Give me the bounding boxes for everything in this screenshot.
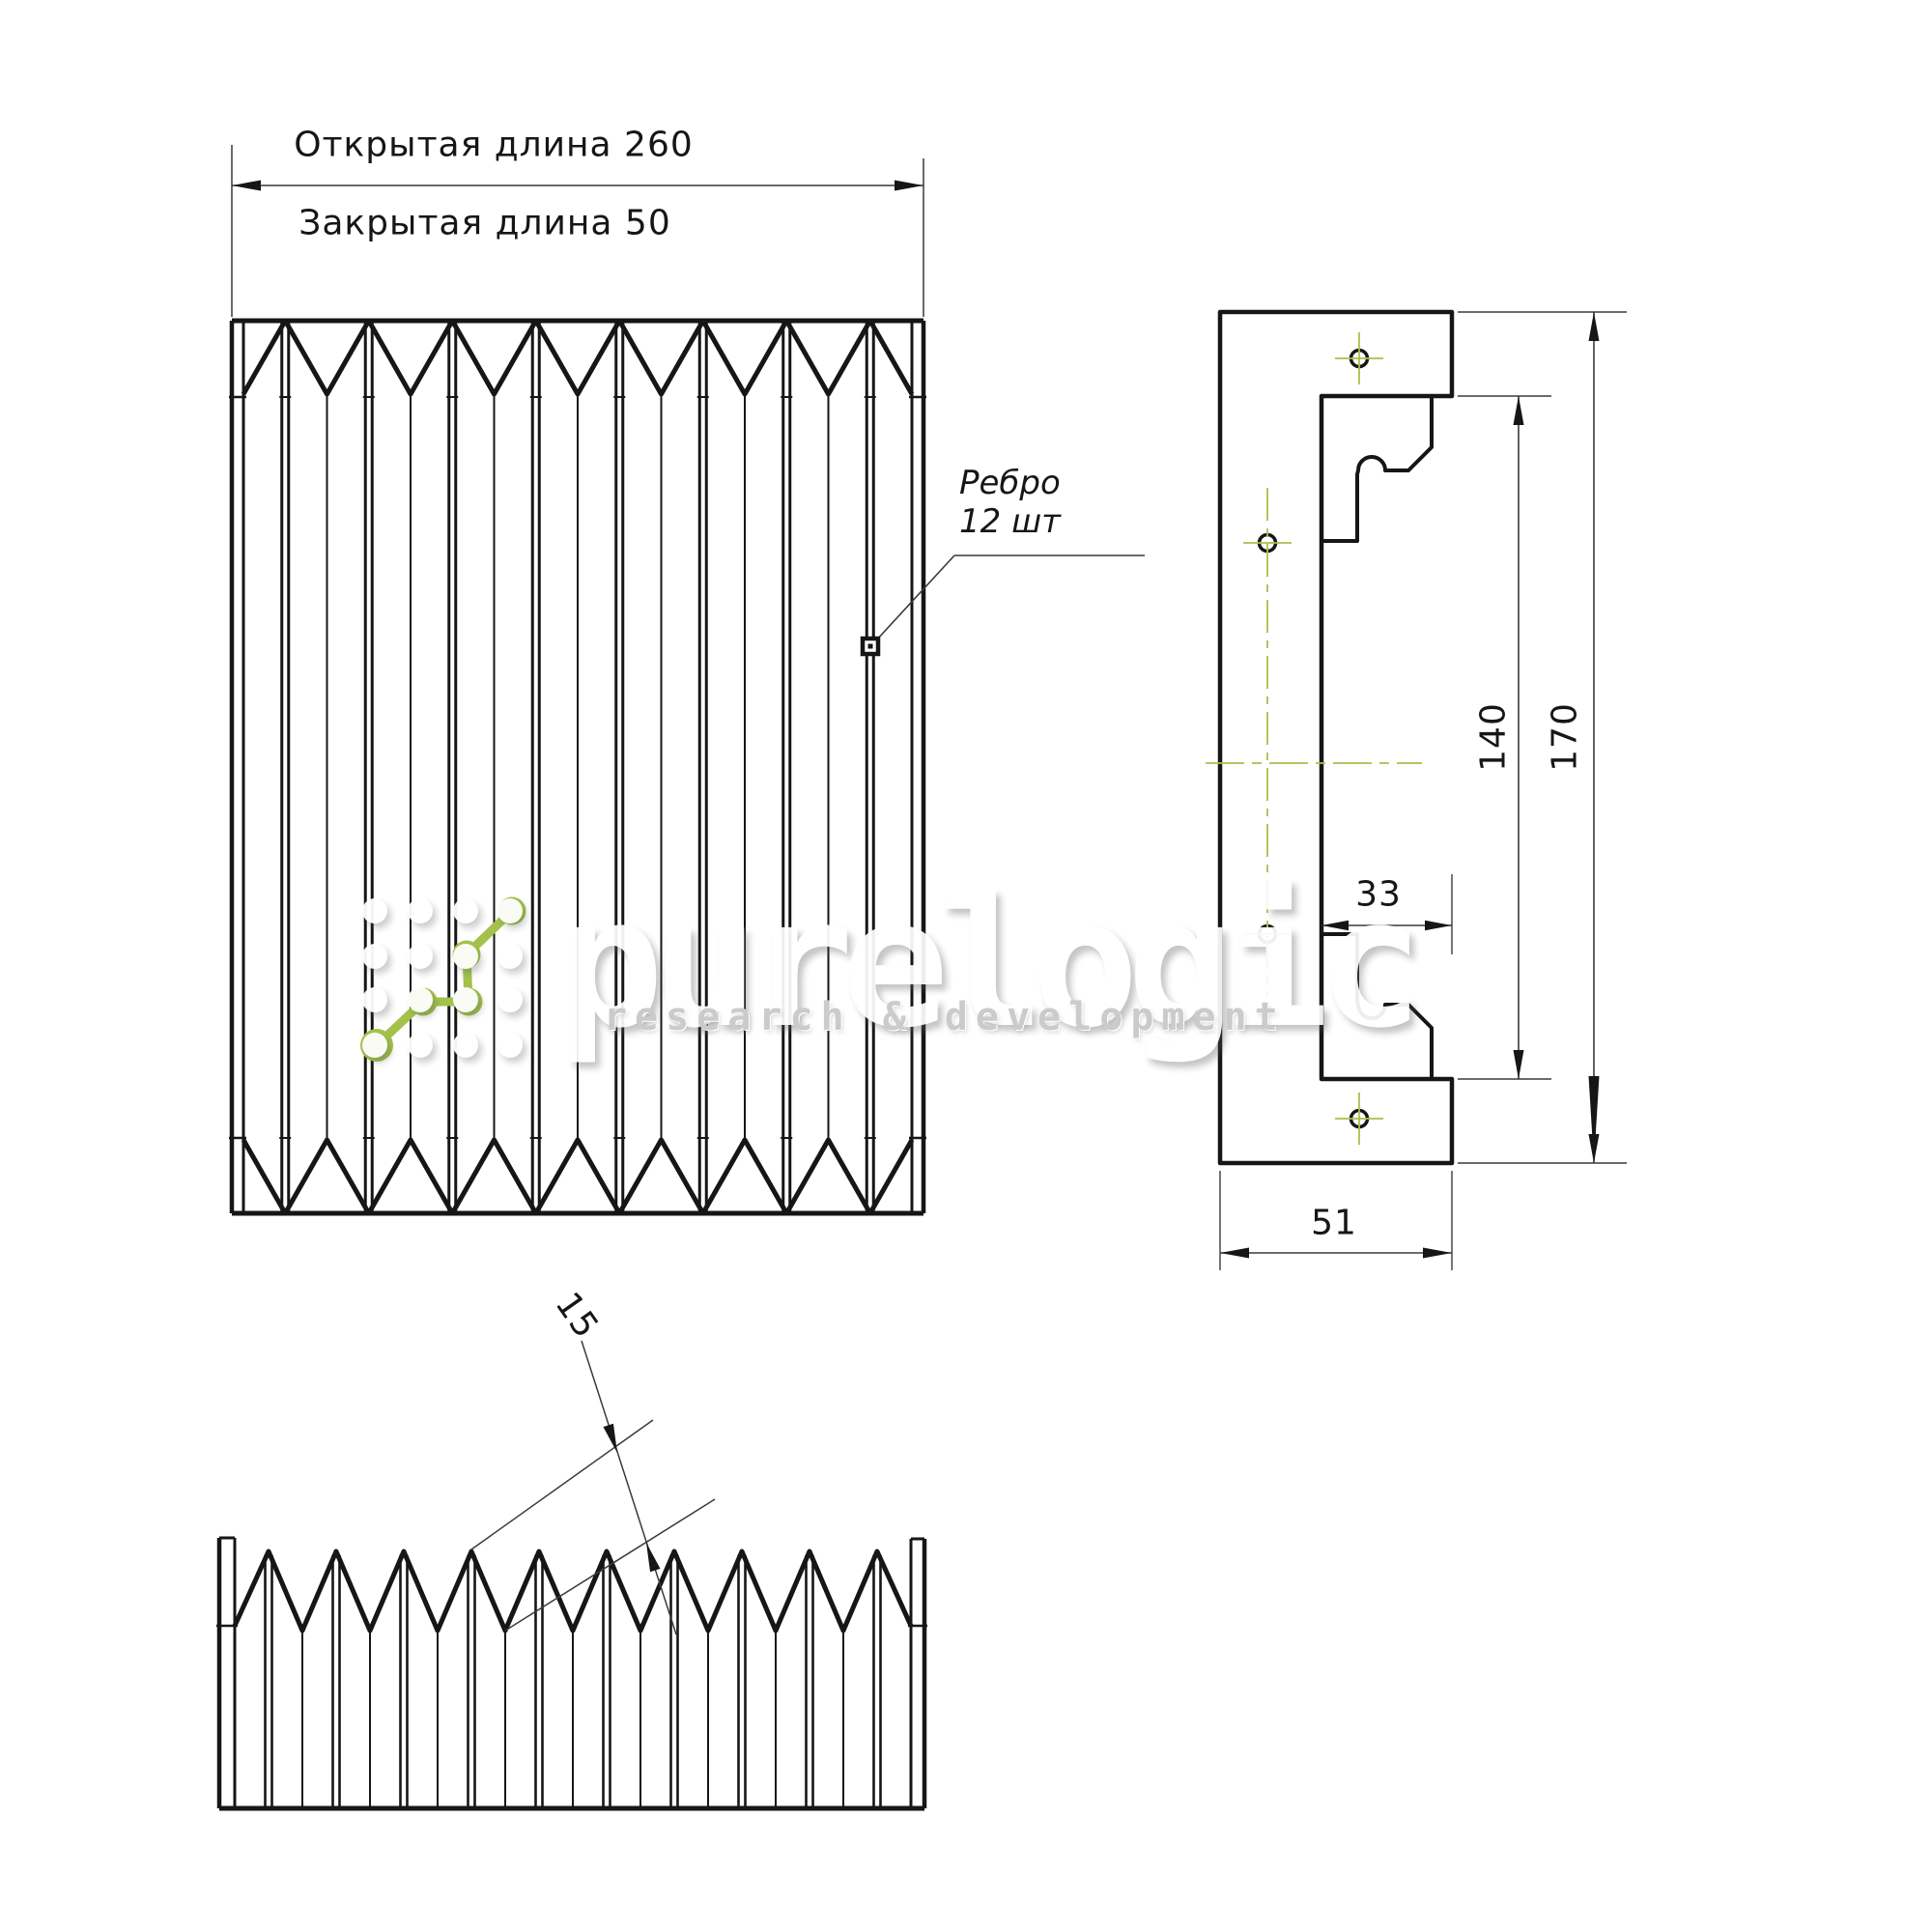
bottom-view xyxy=(216,1538,927,1808)
technical-drawing-page: Открытая длина 260 Закрытая длина 50 Реб… xyxy=(0,0,1932,1932)
rib-leader xyxy=(863,555,1145,654)
front-view xyxy=(229,321,926,1213)
side-view xyxy=(1220,312,1452,1163)
dim-140-label: 140 xyxy=(1474,702,1514,772)
rib-callout: Ребро 12 шт xyxy=(959,464,1061,541)
side-view-centerlines xyxy=(1206,332,1422,1145)
rib-callout-line1: Ребро xyxy=(959,464,1061,502)
dim-170-label: 170 xyxy=(1546,702,1585,772)
drawing-canvas xyxy=(0,0,1932,1932)
closed-length-label: Закрытая длина 50 xyxy=(298,204,670,243)
dim-51-label: 51 xyxy=(1311,1204,1357,1243)
open-length-label: Открытая длина 260 xyxy=(294,126,694,165)
dim-33-label: 33 xyxy=(1355,875,1402,915)
rib-callout-line2: 12 шт xyxy=(959,502,1061,541)
